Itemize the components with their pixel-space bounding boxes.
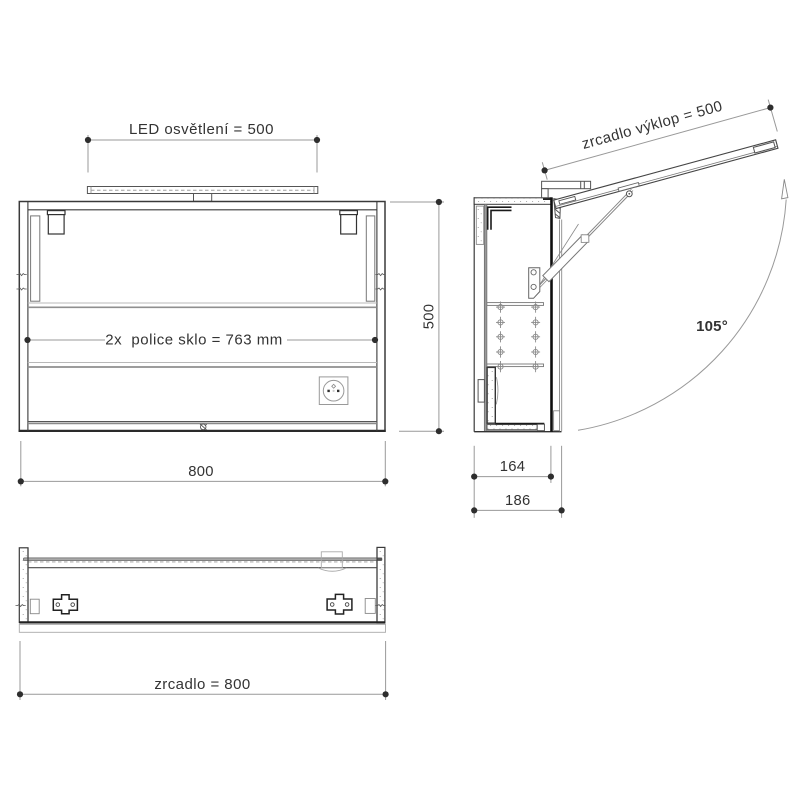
- svg-text:2x police sklo = 763 mm: 2x police sklo = 763 mm: [105, 332, 283, 349]
- svg-text:LED osvětlení = 500: LED osvětlení = 500: [129, 121, 274, 138]
- svg-text:186: 186: [505, 493, 531, 509]
- svg-text:zrcadlo = 800: zrcadlo = 800: [154, 676, 250, 693]
- svg-text:500: 500: [422, 304, 438, 330]
- svg-text:zrcadlo výklop = 500: zrcadlo výklop = 500: [580, 98, 724, 153]
- svg-text:800: 800: [188, 464, 214, 480]
- svg-text:164: 164: [500, 459, 526, 475]
- svg-text:105°: 105°: [696, 318, 728, 335]
